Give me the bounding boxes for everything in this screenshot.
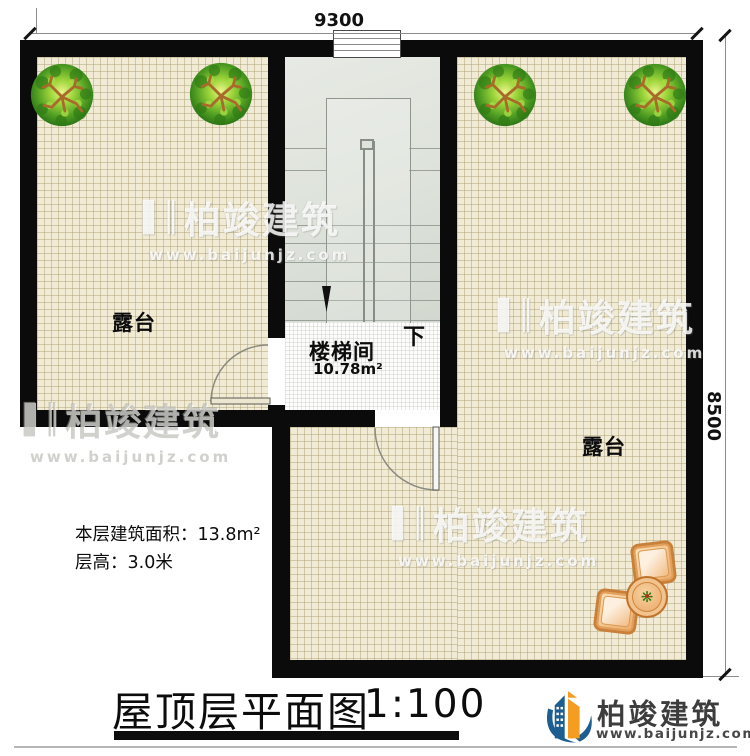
wall-terrace-bottom-left bbox=[272, 427, 290, 678]
plant-dot-icon bbox=[645, 594, 649, 598]
stairwell-area-label: 10.78m² bbox=[313, 360, 383, 378]
watermark-url: www.baijunjz.com bbox=[30, 448, 231, 466]
stair-handrail bbox=[363, 141, 375, 322]
floor-height-note: 层高：3.0米 bbox=[75, 549, 173, 574]
tree-icon bbox=[472, 62, 538, 128]
company-logo-url: www.baijunjz.com bbox=[596, 726, 750, 742]
stair-tread bbox=[409, 148, 440, 149]
watermark-url: www.baijunjz.com bbox=[398, 552, 599, 570]
watermark-url: www.baijunjz.com bbox=[149, 246, 350, 264]
stair-tread bbox=[409, 170, 440, 171]
floor-plan-sheet: ❋ 露台 露台 楼梯间 10.78m² 下 9300 8500 ▌║柏竣建筑 w… bbox=[0, 0, 750, 756]
watermark-brand: 柏竣建筑 bbox=[65, 392, 221, 446]
dimension-right-value: 8500 bbox=[692, 394, 736, 438]
watermark-logo-icon: ▌║ bbox=[392, 506, 426, 540]
watermark-logo-icon: ▌║ bbox=[143, 200, 177, 234]
watermark: ▌║柏竣建筑 www.baijunjz.com bbox=[498, 288, 705, 362]
stair-tread bbox=[285, 170, 326, 171]
dimension-line-top bbox=[30, 33, 698, 34]
footer-divider bbox=[14, 746, 737, 748]
company-logo-icon bbox=[543, 687, 593, 745]
wall-stair-bottom bbox=[285, 410, 375, 427]
watermark: ▌║柏竣建筑 www.baijunjz.com bbox=[392, 496, 599, 570]
floor-area-note: 本层建筑面积：13.8m² bbox=[75, 521, 261, 546]
window-icon bbox=[333, 30, 401, 58]
stair-handrail-cap bbox=[360, 139, 374, 150]
tree-icon bbox=[29, 62, 95, 128]
watermark: ▌║柏竣建筑 www.baijunjz.com bbox=[143, 190, 350, 264]
terrace-left-label: 露台 bbox=[112, 307, 156, 337]
watermark-logo-icon: ▌║ bbox=[498, 298, 532, 332]
wall-stair-right bbox=[440, 57, 457, 427]
watermark-brand: 柏竣建筑 bbox=[184, 190, 340, 244]
watermark-brand: 柏竣建筑 bbox=[539, 288, 695, 342]
watermark-url: www.baijunjz.com bbox=[504, 344, 705, 362]
tree-icon bbox=[622, 62, 688, 128]
title-underline bbox=[114, 731, 459, 740]
stair-tread bbox=[285, 148, 326, 149]
wall-bottom bbox=[272, 660, 703, 678]
watermark: ▌║柏竣建筑 www.baijunjz.com bbox=[24, 392, 231, 466]
tree-icon bbox=[188, 61, 254, 127]
sheet-title: 屋顶层平面图 bbox=[112, 678, 370, 738]
sheet-scale: 1:100 bbox=[364, 682, 486, 727]
terrace-right-label: 露台 bbox=[582, 431, 626, 461]
stair-down-label: 下 bbox=[403, 319, 425, 351]
dimension-line-right bbox=[725, 35, 726, 675]
dimension-top-value: 9300 bbox=[307, 10, 371, 31]
table-icon: ❋ bbox=[626, 576, 668, 618]
wall-stair-left-stub bbox=[268, 405, 285, 427]
watermark-brand: 柏竣建筑 bbox=[433, 496, 589, 550]
watermark-logo-icon: ▌║ bbox=[24, 402, 58, 436]
